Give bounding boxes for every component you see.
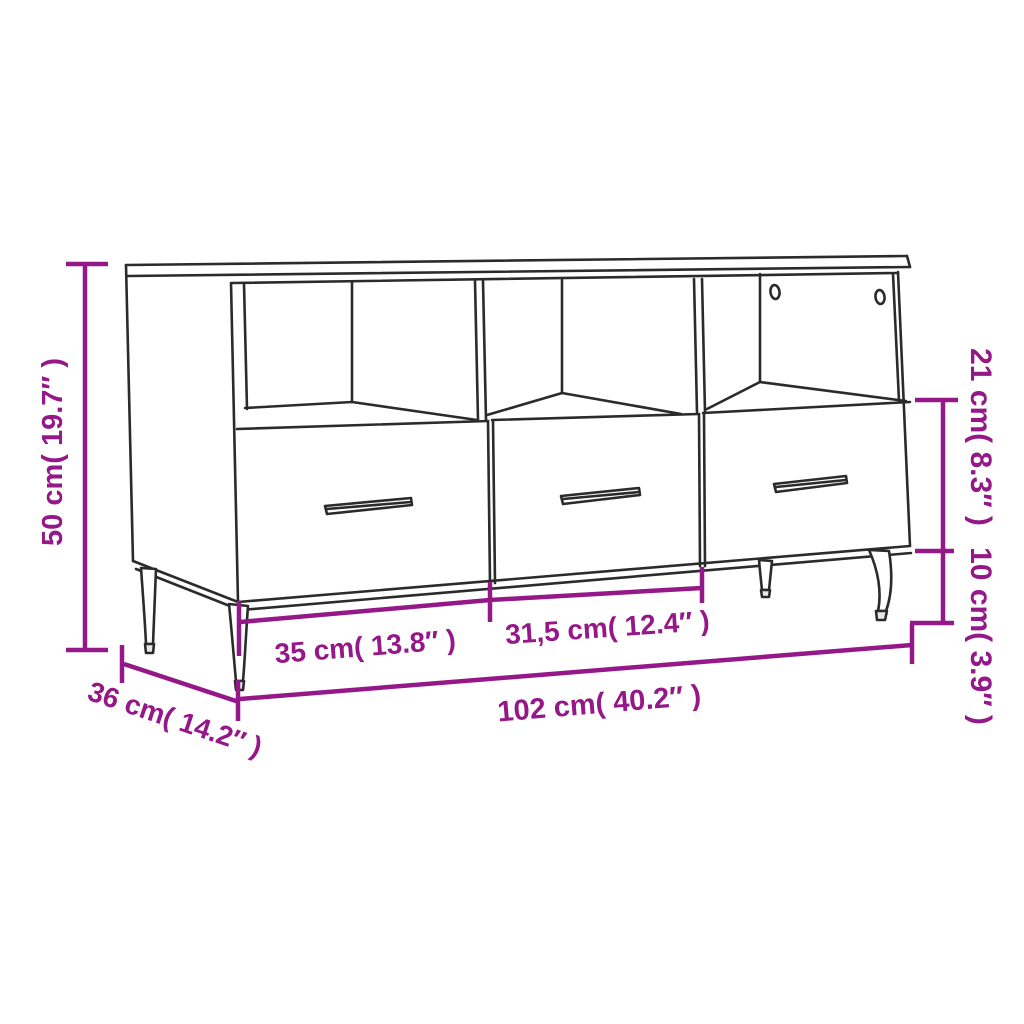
- furniture-dimension-diagram: 50 cm( 19.7″ ) 21 cm( 8.3″ ) 10 cm( 3.9″…: [0, 0, 1024, 1024]
- leg-height-label: 10 cm( 3.9″ ): [964, 547, 997, 725]
- leg-foot: [145, 644, 154, 653]
- diagram-canvas: 50 cm( 19.7″ ) 21 cm( 8.3″ ) 10 cm( 3.9″…: [0, 0, 1024, 1024]
- leg-foot: [876, 611, 887, 620]
- top-section-height-label: 21 cm( 8.3″ ): [964, 348, 997, 526]
- leg-back-right: [759, 560, 772, 597]
- height-label: 50 cm( 19.7″ ): [37, 358, 69, 546]
- background: [0, 0, 1024, 1024]
- leg-foot: [761, 590, 770, 597]
